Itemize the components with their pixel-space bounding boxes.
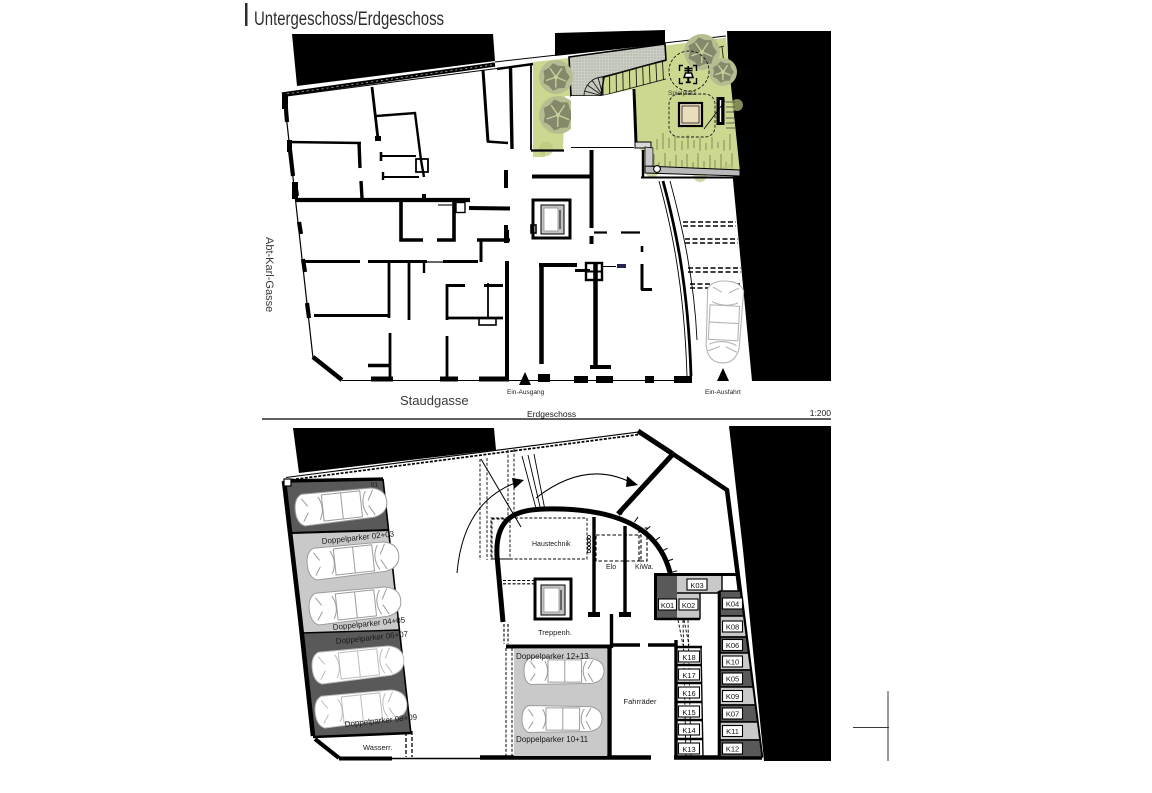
svg-text:K07: K07	[726, 710, 739, 719]
svg-text:K01: K01	[661, 601, 674, 610]
svg-text:K03: K03	[690, 581, 703, 590]
svg-text:K17: K17	[682, 671, 695, 680]
svg-text:Haustechnik: Haustechnik	[532, 541, 571, 548]
svg-text:K10: K10	[726, 658, 739, 667]
svg-text:Wasserr.: Wasserr.	[363, 743, 392, 752]
svg-text:K06: K06	[726, 641, 739, 650]
svg-text:KiWa.: KiWa.	[635, 564, 653, 571]
svg-text:Ein-Ausgang: Ein-Ausgang	[507, 389, 545, 396]
svg-text:K18: K18	[682, 653, 695, 662]
svg-text:01: 01	[370, 481, 378, 489]
svg-text:K08: K08	[726, 623, 739, 632]
svg-text:K04: K04	[726, 600, 739, 609]
svg-text:K14: K14	[682, 726, 695, 735]
svg-text:Untergeschoss/Erdgeschoss: Untergeschoss/Erdgeschoss	[254, 9, 444, 30]
svg-text:Abt-Karl-Gasse: Abt-Karl-Gasse	[263, 237, 275, 312]
svg-text:K15: K15	[682, 708, 695, 717]
svg-text:K11: K11	[726, 727, 739, 736]
svg-text:Erdgeschoss: Erdgeschoss	[527, 409, 576, 419]
svg-text:K02: K02	[682, 601, 695, 610]
svg-text:K13: K13	[682, 745, 695, 754]
svg-text:K12: K12	[726, 745, 739, 754]
svg-text:K09: K09	[726, 692, 739, 701]
svg-text:K16: K16	[682, 689, 695, 698]
svg-text:Doppelparker 10+11: Doppelparker 10+11	[516, 735, 589, 744]
svg-text:1:200: 1:200	[810, 408, 832, 418]
svg-text:Ein-Ausfahrt: Ein-Ausfahrt	[705, 389, 741, 396]
svg-text:Spielplatz: Spielplatz	[668, 90, 696, 97]
svg-text:Fahrräder: Fahrräder	[624, 697, 657, 706]
svg-text:Staudgasse: Staudgasse	[400, 393, 469, 408]
svg-text:K05: K05	[726, 675, 739, 684]
svg-text:Elo: Elo	[606, 564, 616, 571]
svg-text:Doppelparker 12+13: Doppelparker 12+13	[516, 652, 589, 661]
svg-text:Treppenh.: Treppenh.	[538, 628, 572, 637]
